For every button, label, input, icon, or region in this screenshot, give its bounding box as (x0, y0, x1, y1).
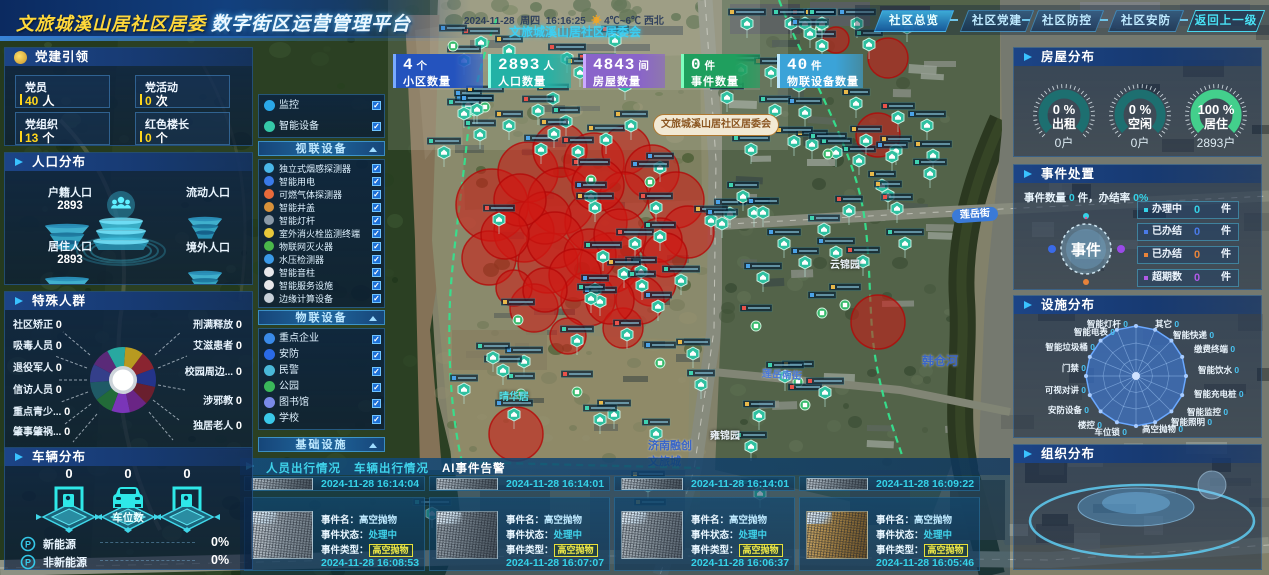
svg-text:0: 0 (183, 466, 190, 481)
svg-text:100 %: 100 % (1198, 102, 1235, 117)
svg-text:2893户: 2893户 (1197, 135, 1236, 150)
svg-text:车位数: 车位数 (112, 511, 144, 524)
svg-text:出租: 出租 (1052, 116, 1076, 131)
svg-text:P: P (25, 558, 31, 568)
svg-text:0 %: 0 % (1053, 102, 1076, 117)
svg-text:事件: 事件 (1071, 241, 1101, 259)
svg-text:P: P (25, 540, 31, 550)
svg-text:居住: 居住 (1204, 116, 1228, 131)
svg-text:空闲: 空闲 (1128, 116, 1152, 131)
svg-text:0户: 0户 (1131, 135, 1150, 150)
svg-text:0: 0 (65, 466, 72, 481)
svg-text:0 %: 0 % (1129, 102, 1152, 117)
svg-text:0: 0 (124, 466, 131, 481)
svg-text:0户: 0户 (1055, 135, 1074, 150)
